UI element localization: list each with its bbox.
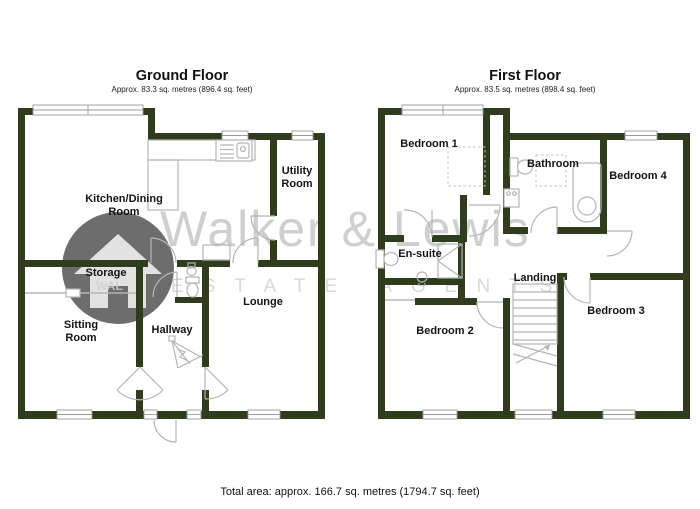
label-bedroom3: Bedroom 3 [587, 305, 644, 317]
window [222, 131, 248, 140]
door-ensuite [404, 210, 432, 237]
label-bedroom2: Bedroom 2 [416, 325, 473, 337]
kitchen-cupboard [203, 245, 230, 260]
label-sitting-line1: Sitting [64, 319, 98, 331]
window [144, 410, 157, 419]
storage-partition [25, 289, 136, 297]
label-kitchen-line2: Room [108, 206, 139, 218]
door-bedroom4 [607, 231, 632, 256]
first-floor-title-block: First Floor Approx. 83.5 sq. metres (898… [405, 68, 645, 94]
window [625, 131, 657, 140]
window [515, 410, 552, 419]
label-landing: Landing [514, 272, 557, 284]
bedroom1-dashed-furniture [448, 147, 485, 186]
bathroom-bath [573, 163, 601, 222]
label-utility-line1: Utility [282, 165, 313, 177]
first-floor-title: First Floor [405, 68, 645, 84]
label-bathroom: Bathroom [527, 158, 579, 170]
window [423, 410, 457, 419]
front-door [154, 420, 176, 442]
ground-floor-title-block: Ground Floor Approx. 83.3 sq. metres (89… [62, 68, 302, 94]
door-bedroom2 [477, 302, 503, 328]
label-sitting-line2: Room [65, 332, 96, 344]
total-area-text: Total area: approx. 166.7 sq. metres (17… [0, 486, 700, 498]
ground-floor-title: Ground Floor [62, 68, 302, 84]
ground-floor-plan: Kitchen/Dining Room Utility Room Storage… [18, 105, 325, 442]
door-lounge-kitchen [233, 238, 258, 263]
wc-toilet [186, 277, 199, 297]
stairs-icon [169, 336, 203, 368]
label-storage: Storage [86, 267, 127, 279]
window [187, 410, 201, 419]
door-bathroom [531, 207, 557, 233]
ground-floor-walls [18, 108, 325, 419]
window [402, 105, 483, 115]
door-wc [153, 272, 177, 297]
window [57, 410, 92, 419]
first-floor-plan: Bedroom 1 Bathroom Bedroom 4 En-suite La… [376, 105, 690, 419]
window [248, 410, 280, 419]
door-utility [251, 216, 275, 240]
label-lounge: Lounge [243, 296, 283, 308]
first-floor-walls [378, 108, 690, 419]
ensuite-toilet [376, 250, 398, 268]
door-bedroom1 [469, 205, 500, 236]
ground-floor-area: Approx. 83.3 sq. metres (896.4 sq. feet) [62, 85, 302, 94]
door-kitchen-hallway [151, 238, 176, 263]
window [33, 105, 143, 115]
label-hallway: Hallway [152, 324, 194, 336]
bathroom-sink [504, 189, 519, 207]
kitchen-sink-unit [216, 140, 252, 161]
window [603, 410, 635, 419]
first-floor-area: Approx. 83.5 sq. metres (898.4 sq. feet) [405, 85, 645, 94]
floorplan-canvas: WAL Walker & Lewis ESTATE AGENTS [0, 0, 700, 509]
label-bedroom1: Bedroom 1 [400, 138, 457, 150]
label-ensuite: En-suite [398, 248, 441, 260]
door-bedroom3 [564, 277, 590, 303]
stairs-icon [513, 284, 557, 366]
window [292, 131, 313, 140]
label-utility-line2: Room [281, 178, 312, 190]
label-bedroom4: Bedroom 4 [609, 170, 667, 182]
label-kitchen-line1: Kitchen/Dining [85, 193, 163, 205]
